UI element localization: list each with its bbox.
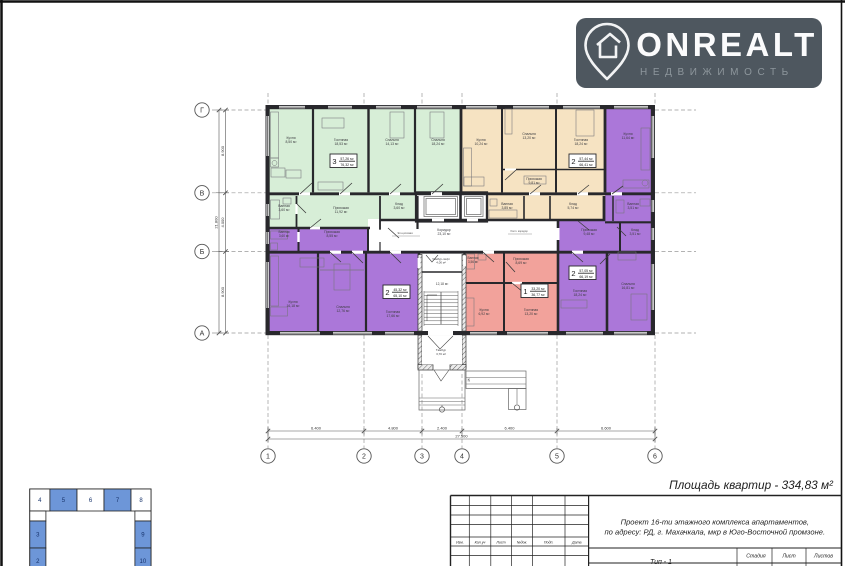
svg-text:Изм.: Изм. bbox=[456, 541, 464, 545]
svg-text:5,74 м²: 5,74 м² bbox=[567, 206, 579, 210]
svg-text:8,50 м²: 8,50 м² bbox=[285, 140, 297, 144]
svg-text:Стадия: Стадия bbox=[746, 554, 766, 560]
svg-text:14,13 м²: 14,13 м² bbox=[386, 142, 400, 146]
svg-text:К: К bbox=[468, 378, 471, 383]
svg-text:3,60 м²: 3,60 м² bbox=[278, 208, 290, 212]
svg-text:Проект 16-ти этажного комплекс: Проект 16-ти этажного комплекса апартаме… bbox=[621, 518, 809, 527]
svg-text:Холл. коридор: Холл. коридор bbox=[510, 229, 528, 233]
svg-text:11,92 м²: 11,92 м² bbox=[335, 210, 349, 214]
svg-text:36,77 м²: 36,77 м² bbox=[531, 293, 545, 297]
svg-text:66,19 м²: 66,19 м² bbox=[579, 275, 593, 279]
svg-text:3,60 м²: 3,60 м² bbox=[393, 206, 405, 210]
svg-text:3,51 м²: 3,51 м² bbox=[627, 206, 639, 210]
svg-text:8,69 м²: 8,69 м² bbox=[515, 261, 527, 265]
svg-text:10,24 м²: 10,24 м² bbox=[475, 142, 489, 146]
svg-text:8,55 м²: 8,55 м² bbox=[326, 234, 338, 238]
svg-text:21.800: 21.800 bbox=[214, 216, 219, 229]
svg-text:18,53 м²: 18,53 м² bbox=[335, 142, 349, 146]
svg-text:57,05 м²: 57,05 м² bbox=[579, 269, 593, 273]
svg-text:Б: Б bbox=[200, 249, 205, 256]
svg-text:НЕДВИЖИМОСТЬ: НЕДВИЖИМОСТЬ bbox=[640, 67, 794, 78]
svg-text:3,51 м²: 3,51 м² bbox=[629, 232, 641, 236]
svg-text:3,70 м²: 3,70 м² bbox=[436, 352, 446, 356]
svg-text:2: 2 bbox=[571, 269, 575, 278]
svg-text:4.800: 4.800 bbox=[388, 426, 399, 431]
svg-text:6: 6 bbox=[653, 454, 657, 461]
svg-text:по адресу: РД, г. Махачкала, м: по адресу: РД, г. Махачкала, мкр в Юго-В… bbox=[604, 528, 825, 537]
svg-text:12,76 м²: 12,76 м² bbox=[337, 309, 351, 313]
svg-text:3,60 м²: 3,60 м² bbox=[279, 234, 289, 238]
svg-text:А: А bbox=[200, 331, 205, 338]
svg-text:76,32 м²: 76,32 м² bbox=[340, 163, 354, 167]
svg-text:Дата: Дата bbox=[571, 541, 581, 545]
svg-text:65,10 м²: 65,10 м² bbox=[393, 294, 407, 298]
svg-text:13,20 м²: 13,20 м² bbox=[523, 136, 537, 140]
svg-text:Листов: Листов bbox=[813, 554, 833, 560]
svg-text:4,00 м²: 4,00 м² bbox=[436, 261, 445, 265]
svg-text:6.400: 6.400 bbox=[311, 426, 322, 431]
svg-text:4: 4 bbox=[460, 454, 464, 461]
svg-text:9,48 м²: 9,48 м² bbox=[583, 232, 595, 236]
svg-text:3: 3 bbox=[420, 454, 424, 461]
svg-text:4.000: 4.000 bbox=[220, 217, 225, 228]
svg-text:57,26 м²: 57,26 м² bbox=[340, 157, 354, 161]
svg-text:Кол.уч: Кол.уч bbox=[475, 541, 486, 545]
svg-text:1: 1 bbox=[523, 287, 527, 296]
svg-text:11,64 м²: 11,64 м² bbox=[622, 136, 636, 140]
svg-text:5: 5 bbox=[555, 454, 559, 461]
svg-text:Г: Г bbox=[200, 108, 204, 115]
svg-text:3: 3 bbox=[332, 157, 336, 166]
svg-text:1: 1 bbox=[266, 454, 270, 461]
svg-text:В: В bbox=[200, 190, 205, 197]
svg-text:2: 2 bbox=[362, 454, 366, 461]
svg-text:57,44 м²: 57,44 м² bbox=[579, 157, 593, 161]
svg-text:Подп.: Подп. bbox=[544, 541, 554, 545]
svg-text:45,32 м²: 45,32 м² bbox=[393, 288, 407, 292]
svg-text:17,66 м²: 17,66 м² bbox=[387, 314, 401, 318]
svg-text:8.900: 8.900 bbox=[220, 145, 225, 156]
svg-text:10: 10 bbox=[140, 559, 147, 565]
svg-text:3,56 м²: 3,56 м² bbox=[468, 260, 478, 264]
svg-text:Площадь квартир - 334,83 м²: Площадь квартир - 334,83 м² bbox=[669, 478, 834, 492]
svg-text:16,81 м²: 16,81 м² bbox=[622, 286, 636, 290]
svg-text:13,20 м²: 13,20 м² bbox=[525, 312, 539, 316]
svg-text:16,18 м²: 16,18 м² bbox=[287, 304, 301, 308]
svg-text:Лист: Лист bbox=[495, 541, 505, 545]
svg-text:6.400: 6.400 bbox=[504, 426, 515, 431]
svg-text:Тип - 1: Тип - 1 bbox=[650, 559, 672, 566]
svg-text:Эл.щитовая: Эл.щитовая bbox=[397, 231, 413, 235]
svg-text:6.600: 6.600 bbox=[601, 426, 612, 431]
svg-text:18,24 м²: 18,24 м² bbox=[575, 142, 589, 146]
svg-text:27.500: 27.500 bbox=[455, 434, 468, 439]
svg-text:33,20 м²: 33,20 м² bbox=[531, 287, 545, 291]
svg-text:66,41 м²: 66,41 м² bbox=[579, 163, 593, 167]
svg-text:9,81 м²: 9,81 м² bbox=[528, 181, 540, 185]
svg-text:6,92 м²: 6,92 м² bbox=[478, 312, 490, 316]
svg-text:№док.: №док. bbox=[517, 541, 528, 545]
svg-text:2: 2 bbox=[571, 157, 575, 166]
svg-text:2: 2 bbox=[385, 288, 389, 297]
svg-text:Лист: Лист bbox=[781, 554, 796, 560]
svg-text:2.400: 2.400 bbox=[437, 426, 448, 431]
svg-text:23,10 м²: 23,10 м² bbox=[438, 232, 452, 236]
svg-text:12,18 м²: 12,18 м² bbox=[436, 282, 449, 286]
svg-text:3,85 м²: 3,85 м² bbox=[501, 206, 513, 210]
svg-text:18,24 м²: 18,24 м² bbox=[574, 293, 588, 297]
svg-text:8.900: 8.900 bbox=[220, 286, 225, 297]
svg-text:18,24 м²: 18,24 м² bbox=[432, 142, 446, 146]
svg-text:ONREALT: ONREALT bbox=[636, 26, 818, 63]
